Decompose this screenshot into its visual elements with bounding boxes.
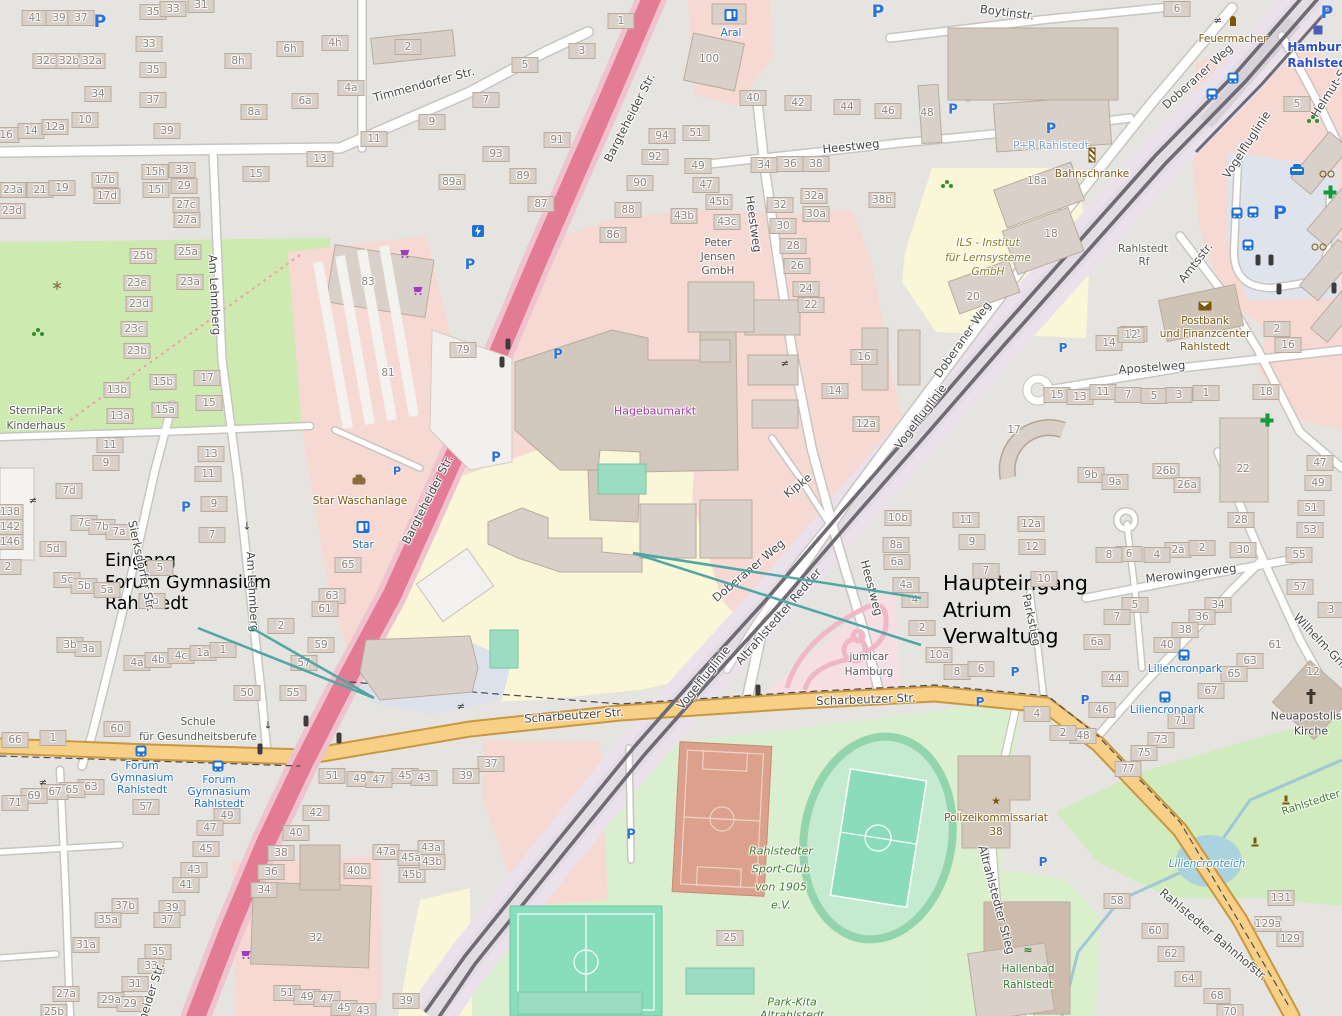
house-number: 37 — [484, 759, 497, 770]
house-number: 19 — [55, 183, 68, 194]
house-number: 37 — [74, 13, 87, 24]
house-number: 27c — [176, 200, 195, 211]
house-number: 10b — [888, 513, 908, 524]
house-number: 67 — [1204, 686, 1217, 697]
carwash-icon — [353, 478, 366, 485]
house-number: 30 — [776, 221, 789, 232]
house-number: 38 — [809, 159, 822, 170]
house-number: 34 — [1211, 600, 1224, 611]
house-number: 3 — [579, 46, 586, 57]
house-number: 12 — [1306, 667, 1319, 678]
parking-icon: P — [465, 257, 475, 273]
house-number: 60 — [110, 724, 123, 735]
house-number: 4h — [328, 38, 341, 49]
house-number: 43a — [421, 843, 441, 854]
house-number: 53 — [1303, 525, 1316, 536]
cart-icon — [414, 287, 425, 295]
police-icon: ★ — [991, 795, 1001, 808]
house-number: 21 — [33, 185, 46, 196]
traffic-icon — [500, 357, 505, 368]
house-number: 9b — [1084, 470, 1097, 481]
house-number: 7c — [78, 518, 90, 529]
transit-stop-label: Star — [352, 540, 374, 551]
parking-icon: P — [393, 465, 401, 478]
house-number: 44 — [1108, 674, 1121, 685]
traffic-icon — [1269, 255, 1274, 266]
house-number: 65 — [65, 785, 78, 796]
house-number: 48 — [920, 108, 933, 119]
house-number: 27a — [177, 215, 197, 226]
house-number: 45 — [337, 1003, 350, 1014]
house-number: 12 — [1025, 542, 1038, 553]
house-number: 5 — [157, 563, 164, 574]
house-number: 40 — [1160, 640, 1173, 651]
house-number: 23d — [129, 299, 149, 310]
house-number: 31 — [128, 979, 141, 990]
house-number: 46 — [1095, 705, 1108, 716]
house-number: 17 — [200, 373, 213, 384]
house-number: 7 — [1125, 390, 1132, 401]
house-number: 7a — [112, 527, 125, 538]
house-number: 68 — [1210, 991, 1223, 1002]
traffic-icon — [1256, 255, 1261, 266]
house-number: 34 — [757, 160, 770, 171]
house-number: 6h — [283, 44, 296, 55]
house-number: 62 — [1164, 949, 1177, 960]
bus-icon — [136, 746, 147, 757]
green-icon — [36, 328, 40, 332]
house-number: 83 — [361, 277, 374, 288]
house-number: 35 — [146, 7, 159, 18]
poi-label: Liliencronteich — [1169, 859, 1246, 870]
traffic-icon — [258, 744, 263, 755]
house-number: 39 — [160, 126, 173, 137]
optician-icon — [1312, 244, 1327, 251]
house-number: 35a — [98, 915, 118, 926]
bus-icon — [1179, 650, 1190, 661]
house-number: 33 — [166, 4, 179, 15]
house-number: 32a — [804, 191, 824, 202]
transit-stop-label: Liliencronpark — [1148, 664, 1222, 675]
house-number: 32c — [36, 56, 55, 67]
arrow-icon: ↓ — [243, 522, 251, 533]
house-number: 2 — [278, 621, 285, 632]
house-number: 45a — [401, 853, 421, 864]
poi-label: ILS - Institut — [956, 238, 1019, 249]
transit-stop-label: Liliencronpark — [1130, 705, 1204, 716]
house-number: 11 — [959, 515, 972, 526]
house-number: 45b — [402, 870, 422, 881]
house-number: 5c — [61, 575, 73, 586]
house-number: 23a — [180, 277, 200, 288]
green-icon — [1311, 115, 1315, 119]
house-number: 12a — [856, 419, 876, 430]
taxi-icon — [1290, 167, 1304, 175]
house-number: 2 — [1060, 728, 1067, 739]
station-label: Rahlstedt — [1287, 57, 1342, 69]
optician-icon — [1320, 171, 1335, 178]
house-number: 43b — [422, 857, 442, 868]
poi-label: Neuapostolische — [1271, 711, 1342, 722]
poi-label: 38 — [989, 827, 1002, 838]
barrier-icon: ≠ — [781, 359, 789, 370]
house-number: 30a — [806, 209, 826, 220]
house-number: 26 — [790, 261, 803, 272]
transit-stop-label: Gymnasium — [111, 773, 174, 784]
house-number: 22 — [804, 300, 817, 311]
bus-icon — [1207, 89, 1218, 100]
house-number: 43b — [674, 211, 694, 222]
house-number: 15l — [148, 185, 164, 196]
poi-label: Star Waschanlage — [313, 496, 407, 507]
parking-icon: P — [553, 348, 563, 363]
transit-stop-label: Forum — [125, 761, 158, 772]
house-number: 15h — [145, 167, 165, 178]
poi-label: Rahlstedt — [1180, 342, 1230, 353]
house-number: 2a — [1171, 545, 1184, 556]
house-number: 17b — [95, 175, 115, 186]
poi-label: jumicar — [849, 652, 888, 663]
house-number: 23c — [124, 324, 143, 335]
poi-label: e.V. — [771, 900, 791, 911]
house-number: 47a — [376, 847, 396, 858]
parking-icon: P — [1059, 341, 1068, 355]
house-number: 18 — [1259, 387, 1272, 398]
asterisk-icon: ∗ — [51, 278, 63, 294]
traffic-icon — [1332, 283, 1337, 294]
house-number: 13 — [1073, 392, 1086, 403]
house-number: 1 — [220, 645, 227, 656]
house-number: 66 — [8, 735, 21, 746]
traffic-icon — [506, 339, 511, 350]
house-number: 20 — [966, 292, 979, 303]
house-number: 100 — [699, 54, 719, 65]
house-number: 28 — [1234, 515, 1247, 526]
house-number: 4a — [344, 83, 357, 94]
poi-label: Feuermacher — [1198, 34, 1267, 45]
poi-label: Jensen — [701, 252, 736, 263]
house-number: 9 — [969, 537, 976, 548]
house-number: 5b — [77, 581, 90, 592]
house-number: 63 — [84, 782, 97, 793]
house-number: 93 — [489, 149, 502, 160]
transit-stop-label: Gymnasium — [188, 787, 251, 798]
house-number: 63 — [1243, 656, 1256, 667]
map-canvas[interactable]: EingangForum GymnasiumRahlstedtHaupteing… — [0, 0, 1342, 1016]
house-number: 10 — [1037, 574, 1050, 585]
house-number: 5 — [1132, 600, 1139, 611]
house-number: 51 — [280, 988, 293, 999]
house-number: 59 — [314, 640, 327, 651]
house-number: 92 — [648, 152, 661, 163]
callout-line: Rahlstedt — [105, 594, 293, 616]
house-number: 33 — [142, 39, 155, 50]
house-number: 13 — [204, 449, 217, 460]
house-number: 4a — [899, 580, 912, 591]
house-number: 129a — [1255, 919, 1281, 930]
parking-icon: P — [1011, 665, 1020, 679]
house-number: 43c — [717, 217, 736, 228]
house-number: 37 — [160, 915, 173, 926]
house-number: 2 — [405, 42, 412, 53]
house-number: 4c — [175, 651, 187, 662]
poi-label: Kirche — [1294, 726, 1328, 737]
poi-label: SterniPark — [9, 406, 63, 417]
house-number: 15 — [1050, 390, 1063, 401]
house-number: 36 — [783, 159, 796, 170]
house-number: 94 — [655, 131, 668, 142]
house-number: 8 — [954, 667, 961, 678]
house-number: 3 — [1176, 390, 1183, 401]
house-number: 51 — [325, 771, 338, 782]
parking-icon: P — [1321, 3, 1333, 23]
house-number: 26a — [1177, 480, 1197, 491]
memorial-icon — [1283, 796, 1290, 805]
house-number: 90 — [633, 178, 646, 189]
bus-icon — [1232, 208, 1243, 219]
house-number: 17 — [1007, 425, 1020, 436]
house-number: 51 — [689, 128, 702, 139]
house-number: 77 — [1121, 764, 1134, 775]
house-number: 65 — [341, 560, 354, 571]
green-icon — [945, 180, 949, 184]
house-number: 26b — [1156, 466, 1176, 477]
poi-label: für Lernsysteme — [945, 253, 1031, 264]
house-number: 15b — [153, 377, 173, 388]
house-number: 60 — [1148, 926, 1161, 937]
house-number: 65 — [1227, 669, 1240, 680]
parking-icon: P — [1046, 121, 1056, 137]
house-number: 23e — [127, 278, 147, 289]
house-number: 69 — [27, 791, 40, 802]
house-number: 42 — [309, 808, 322, 819]
poi-label: Park-Kita — [767, 997, 817, 1008]
house-number: 2 — [1199, 543, 1206, 554]
street-label: Am Lehmberg — [244, 551, 260, 632]
house-number: 36 — [1195, 612, 1208, 623]
house-number: 46 — [881, 106, 894, 117]
house-number: 39 — [459, 771, 472, 782]
house-number: 16 — [1281, 340, 1294, 351]
house-number: 57 — [297, 658, 310, 669]
house-number: 50 — [240, 688, 253, 699]
house-number: 9 — [429, 117, 436, 128]
house-number: 7 — [209, 530, 216, 541]
poi-label: Rahlstedter — [749, 846, 813, 857]
house-number: 4 — [1034, 709, 1041, 720]
house-number: 32 — [773, 200, 786, 211]
house-number: 49 — [353, 774, 366, 785]
house-number: 8a — [889, 540, 902, 551]
house-number: 25b — [44, 1007, 64, 1016]
house-number: 14 — [1102, 338, 1115, 349]
house-number: 9 — [211, 499, 218, 510]
house-number: 40 — [289, 828, 302, 839]
house-number: 36 — [264, 867, 277, 878]
house-number: 34 — [91, 89, 104, 100]
traffic-icon — [337, 733, 342, 744]
ev-icon — [472, 225, 484, 237]
house-number: 6 — [1126, 549, 1133, 560]
house-number: 38 — [1178, 625, 1191, 636]
transit-stop-label: Aral — [721, 28, 742, 39]
house-number: 81 — [381, 368, 394, 379]
house-number: 63 — [325, 591, 338, 602]
bus-icon — [1248, 207, 1259, 218]
house-number: 35 — [146, 65, 159, 76]
house-number: 146 — [0, 537, 20, 548]
house-number: 11 — [1096, 387, 1109, 398]
house-number: 91 — [550, 135, 563, 146]
transit-stop-label: Rahlstedt — [117, 785, 167, 796]
street-label: Am Lehmberg — [206, 254, 222, 335]
traffic-icon — [304, 716, 309, 727]
house-number: 47 — [320, 994, 333, 1005]
house-number: 6 — [1174, 4, 1181, 15]
house-number: 57 — [1293, 582, 1306, 593]
house-number: 23a — [3, 185, 23, 196]
house-number: 45 — [398, 771, 411, 782]
poi-label: GmbH — [972, 267, 1005, 278]
house-number: 55 — [286, 688, 299, 699]
house-number: 30 — [1236, 545, 1249, 556]
callout-line: Forum Gymnasium — [105, 573, 293, 595]
parking-icon: P — [1081, 693, 1090, 707]
poi-label: Sport-Club — [752, 864, 810, 875]
gate-icon — [1089, 148, 1096, 163]
cart-icon — [242, 951, 253, 959]
house-number: 15a — [155, 405, 175, 416]
house-number: 64 — [1181, 974, 1194, 985]
house-number: 4 — [912, 595, 919, 606]
barrier-icon: ≠ — [1214, 16, 1222, 27]
house-number: 24 — [799, 284, 812, 295]
house-number: 28 — [786, 241, 799, 252]
house-number: 55 — [1292, 550, 1305, 561]
house-number: 15 — [202, 398, 215, 409]
poi-label: Hamburg — [845, 667, 894, 678]
poi-label: Hagebaumarkt — [614, 406, 696, 417]
poi-label: Postbank — [1181, 316, 1229, 327]
poi-label: Altrahlstedt — [760, 1010, 824, 1016]
house-number: 129 — [1280, 934, 1300, 945]
house-number: 39 — [165, 903, 178, 914]
house-number: 40 — [746, 93, 759, 104]
house-number: 8a — [247, 107, 260, 118]
house-number: 39 — [52, 13, 65, 24]
poi-label: Kinderhaus — [7, 421, 66, 432]
house-number: 3b — [63, 640, 76, 651]
poi-label: GmbH — [702, 266, 735, 277]
house-number: 31a — [76, 940, 96, 951]
swim-icon: ≈ — [1023, 944, 1032, 957]
poi-label: Bahnschranke — [1055, 169, 1129, 180]
house-number: 29 — [123, 999, 136, 1010]
feuer-icon — [1230, 16, 1236, 26]
house-number: 5 — [1151, 391, 1158, 402]
house-number: 4a — [130, 658, 143, 669]
poi-label: Rf — [1139, 257, 1150, 268]
house-number: 31 — [194, 0, 207, 10]
sbahn-icon — [1314, 26, 1323, 35]
poi-label: Rahlstedt — [1003, 980, 1053, 991]
house-number: 43 — [417, 773, 430, 784]
house-number: 41 — [28, 13, 41, 24]
poi-label: Schule — [180, 717, 215, 728]
post-icon — [1199, 302, 1212, 311]
house-number: 49 — [1311, 478, 1324, 489]
fuel-icon — [725, 9, 738, 21]
house-number: 41 — [179, 880, 192, 891]
house-number: 45 — [199, 844, 212, 855]
house-number: 47 — [1313, 458, 1326, 469]
house-number: 7d — [62, 486, 75, 497]
parking-icon: P — [181, 501, 191, 516]
house-number: 51 — [1304, 503, 1317, 514]
house-number: 3 — [1328, 605, 1335, 616]
arrow-icon: ↓ — [264, 721, 272, 732]
barrier-icon: ≠ — [39, 778, 47, 789]
house-number: 32 — [309, 933, 322, 944]
house-number: 1a — [196, 648, 209, 659]
fuel-icon — [357, 521, 370, 533]
house-number: 86 — [606, 230, 619, 241]
house-number: 12 — [1124, 330, 1137, 341]
bus-icon — [1160, 692, 1171, 703]
house-number: 13 — [313, 154, 326, 165]
pharmacy-icon — [1324, 186, 1337, 199]
house-number: 6a — [890, 557, 903, 568]
house-number: 5d — [46, 544, 59, 555]
house-number: 25b — [133, 251, 153, 262]
house-number: 3a — [81, 644, 94, 655]
house-number: 33 — [175, 165, 188, 176]
house-number: 8h — [231, 56, 244, 67]
house-number: 2 — [5, 562, 12, 573]
house-number: 12a — [1021, 519, 1041, 530]
house-number: 14 — [828, 386, 841, 397]
house-number: 18 — [1044, 229, 1057, 240]
house-number: 7 — [1114, 612, 1121, 623]
house-number: 7 — [483, 95, 490, 106]
house-number: 49 — [300, 992, 313, 1003]
house-number: 79 — [456, 345, 469, 356]
house-number: 18a — [1027, 176, 1047, 187]
house-number: 5a — [100, 585, 113, 596]
house-number: 14 — [24, 126, 37, 137]
house-number: 25a — [178, 247, 198, 258]
house-number: 38b — [872, 195, 892, 206]
house-number: 25 — [723, 933, 736, 944]
house-number: 6 — [978, 664, 985, 675]
barrier-icon: ≠ — [457, 702, 465, 713]
parking-icon: P — [1273, 202, 1287, 224]
house-number: 1 — [618, 16, 625, 27]
house-number: 48 — [1076, 731, 1089, 742]
house-number: 6a — [1090, 637, 1103, 648]
house-number: 13a — [110, 411, 130, 422]
house-number: 29a — [101, 995, 121, 1006]
house-number: 39 — [399, 996, 412, 1007]
house-number: 43 — [187, 865, 200, 876]
house-number: 1 — [50, 733, 57, 744]
house-number: 32a — [82, 56, 102, 67]
house-number: 16 — [0, 130, 13, 141]
poi-label: Peter — [704, 238, 731, 249]
bus-icon — [1243, 240, 1254, 251]
poi-label: für Gesundheitsberufe — [139, 732, 257, 743]
poi-label: Polizeikommissariat — [944, 813, 1048, 824]
